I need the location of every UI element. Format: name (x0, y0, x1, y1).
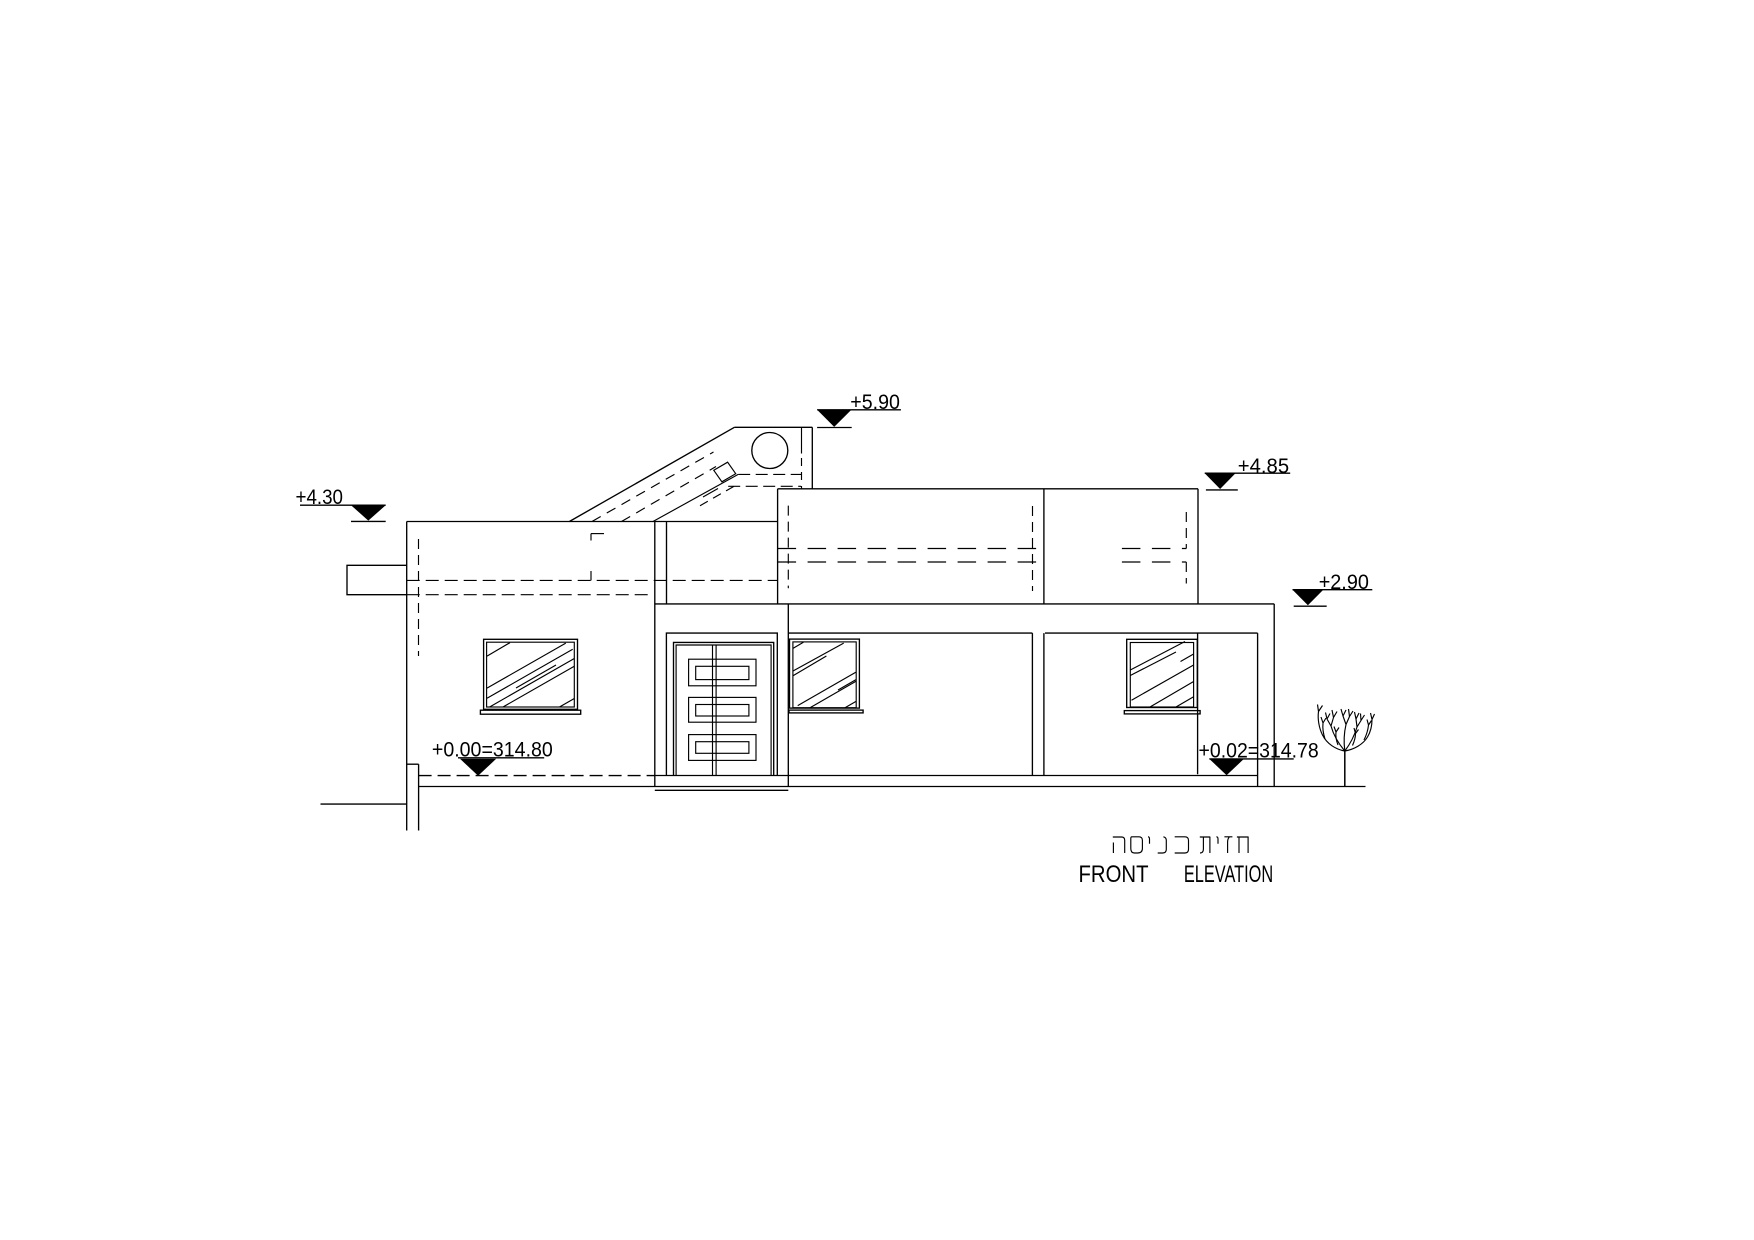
svg-text:+2.90: +2.90 (1319, 570, 1369, 594)
svg-text:+4.85: +4.85 (1238, 454, 1289, 478)
svg-text:FRONT: FRONT (1079, 861, 1149, 888)
svg-text:ELEVATION: ELEVATION (1184, 861, 1273, 888)
svg-text:+5.90: +5.90 (850, 390, 900, 414)
